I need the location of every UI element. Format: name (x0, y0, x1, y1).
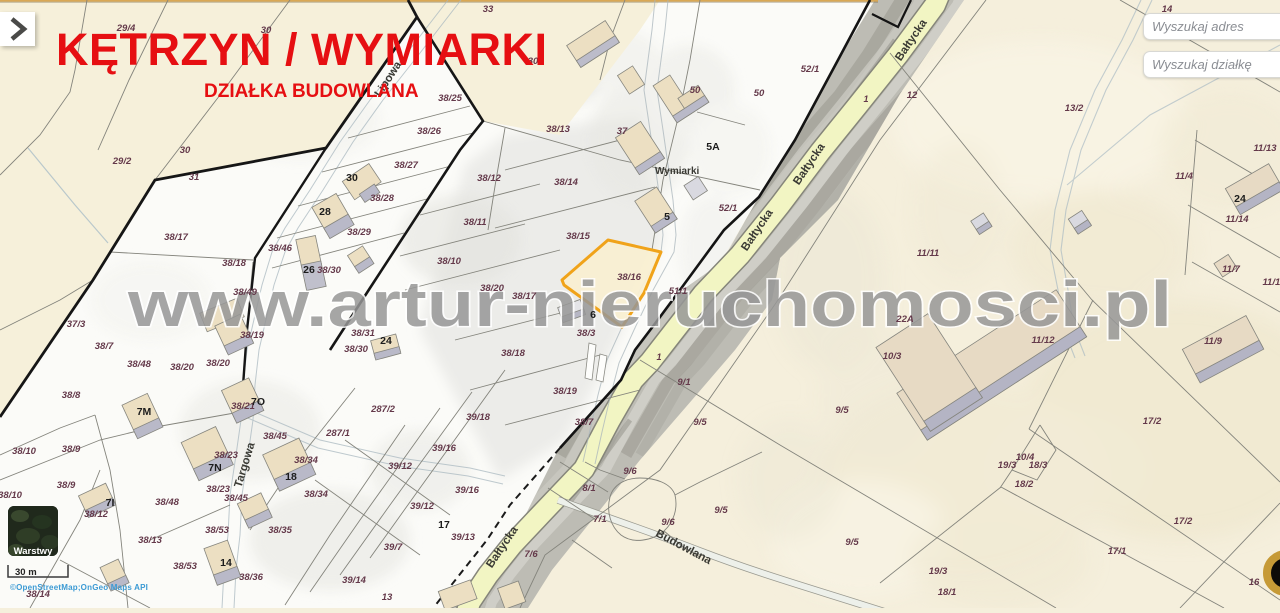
svg-text:19/3: 19/3 (929, 566, 948, 577)
svg-text:38/19: 38/19 (240, 330, 264, 341)
svg-text:26: 26 (303, 264, 315, 276)
svg-text:38/27: 38/27 (394, 160, 418, 171)
svg-text:11/4: 11/4 (1175, 171, 1194, 182)
svg-text:19/3: 19/3 (998, 460, 1017, 471)
svg-text:12: 12 (907, 90, 918, 101)
svg-text:39/12: 39/12 (410, 501, 434, 512)
svg-text:38/16: 38/16 (617, 272, 641, 283)
svg-text:39/7: 39/7 (384, 542, 403, 553)
svg-text:50: 50 (754, 88, 765, 99)
svg-text:18/3: 18/3 (1029, 460, 1048, 471)
svg-text:9/6: 9/6 (623, 466, 637, 477)
svg-text:38/7: 38/7 (95, 341, 114, 352)
svg-text:38/13: 38/13 (138, 535, 162, 546)
svg-text:39/13: 39/13 (451, 532, 475, 543)
svg-text:287/2: 287/2 (370, 404, 395, 415)
svg-text:38/20: 38/20 (170, 362, 194, 373)
svg-text:38/12: 38/12 (84, 509, 108, 520)
svg-text:5: 5 (664, 211, 670, 223)
svg-text:39/16: 39/16 (432, 443, 456, 454)
svg-text:9/6: 9/6 (661, 517, 675, 528)
svg-text:6: 6 (590, 309, 596, 321)
svg-text:38/53: 38/53 (173, 561, 197, 572)
svg-text:18/2: 18/2 (1015, 479, 1034, 490)
svg-text:38/36: 38/36 (239, 572, 263, 583)
svg-text:50: 50 (690, 85, 701, 96)
svg-text:38/9: 38/9 (57, 480, 76, 491)
svg-text:287/1: 287/1 (325, 428, 350, 439)
svg-text:38/7: 38/7 (575, 417, 594, 428)
svg-text:37: 37 (617, 126, 628, 137)
svg-text:38/12: 38/12 (477, 173, 501, 184)
svg-text:38/48: 38/48 (155, 497, 179, 508)
svg-text:18/1: 18/1 (938, 587, 957, 598)
svg-text:30 m: 30 m (15, 567, 37, 578)
svg-text:29/2: 29/2 (112, 156, 132, 167)
svg-text:39/14: 39/14 (342, 575, 366, 586)
svg-text:37/3: 37/3 (67, 319, 86, 330)
svg-text:38/19: 38/19 (553, 386, 577, 397)
svg-text:7M: 7M (137, 406, 152, 418)
svg-text:38/10: 38/10 (12, 446, 36, 457)
svg-text:52/1: 52/1 (801, 64, 820, 75)
svg-text:38/13: 38/13 (546, 124, 570, 135)
svg-text:33: 33 (483, 4, 494, 15)
svg-text:51/1: 51/1 (669, 286, 688, 297)
svg-text:38/31: 38/31 (351, 328, 375, 339)
svg-text:7/1: 7/1 (593, 514, 606, 525)
svg-text:17: 17 (438, 519, 450, 531)
svg-text:39/12: 39/12 (388, 461, 412, 472)
svg-text:9/5: 9/5 (714, 505, 728, 516)
svg-text:13/2: 13/2 (1065, 103, 1084, 114)
svg-text:39/18: 39/18 (466, 412, 490, 423)
svg-text:38/30: 38/30 (344, 344, 368, 355)
svg-text:38/34: 38/34 (304, 489, 328, 500)
svg-text:17/1: 17/1 (1108, 546, 1127, 557)
svg-text:38/23: 38/23 (214, 450, 238, 461)
svg-text:5A: 5A (706, 141, 720, 153)
svg-text:11/11: 11/11 (917, 248, 939, 259)
svg-text:www.artur-nieruchomosci.pl: www.artur-nieruchomosci.pl (127, 268, 1172, 340)
svg-text:38/29: 38/29 (347, 227, 371, 238)
svg-text:8/1: 8/1 (582, 483, 595, 494)
svg-text:31: 31 (189, 172, 200, 183)
svg-text:38/25: 38/25 (438, 93, 462, 104)
svg-text:11/7: 11/7 (1222, 264, 1241, 275)
svg-text:38/10: 38/10 (0, 490, 23, 501)
svg-text:38/49: 38/49 (233, 287, 257, 298)
svg-text:9/5: 9/5 (693, 417, 707, 428)
svg-text:39/16: 39/16 (455, 485, 479, 496)
svg-text:38/14: 38/14 (554, 177, 578, 188)
svg-text:11/13: 11/13 (1253, 143, 1277, 154)
svg-text:Warstwy: Warstwy (14, 546, 53, 556)
svg-text:22A: 22A (895, 314, 914, 325)
svg-text:38/26: 38/26 (417, 126, 441, 137)
svg-text:38/3: 38/3 (577, 328, 596, 339)
svg-text:38/30: 38/30 (317, 265, 341, 276)
svg-text:38/8: 38/8 (62, 390, 81, 401)
svg-text:52/1: 52/1 (719, 203, 738, 214)
svg-text:38/53: 38/53 (205, 525, 229, 536)
svg-text:16: 16 (1249, 577, 1260, 588)
svg-text:9/1: 9/1 (677, 377, 690, 388)
svg-text:38/34: 38/34 (294, 455, 318, 466)
svg-text:1: 1 (656, 352, 661, 362)
svg-text:1: 1 (863, 94, 868, 104)
svg-text:24: 24 (380, 335, 392, 347)
svg-text:7/6: 7/6 (524, 549, 538, 560)
svg-text:14: 14 (220, 557, 232, 569)
svg-text:38/18: 38/18 (501, 348, 525, 359)
svg-text:38/15: 38/15 (566, 231, 590, 242)
svg-text:38/20: 38/20 (206, 358, 230, 369)
svg-text:38/9: 38/9 (62, 444, 81, 455)
svg-text:Wymiarki: Wymiarki (655, 166, 700, 177)
svg-text:30: 30 (346, 172, 358, 184)
svg-text:38/23: 38/23 (206, 484, 230, 495)
svg-text:38/17: 38/17 (164, 232, 188, 243)
svg-text:11/9: 11/9 (1204, 336, 1223, 347)
svg-text:17/2: 17/2 (1174, 516, 1193, 527)
svg-text:38/20: 38/20 (480, 283, 504, 294)
svg-text:9/5: 9/5 (835, 405, 849, 416)
svg-text:13: 13 (382, 592, 393, 603)
svg-text:7N: 7N (208, 462, 221, 474)
svg-text:7O: 7O (251, 396, 265, 408)
svg-text:9/5: 9/5 (845, 537, 859, 548)
svg-text:38/46: 38/46 (268, 243, 292, 254)
svg-text:38/35: 38/35 (268, 525, 292, 536)
svg-text:11/12: 11/12 (1031, 335, 1055, 346)
svg-text:28: 28 (319, 206, 331, 218)
svg-text:38/10: 38/10 (437, 256, 461, 267)
svg-text:30: 30 (180, 145, 191, 156)
svg-text:38/28: 38/28 (370, 193, 394, 204)
svg-text:38/48: 38/48 (127, 359, 151, 370)
svg-text:11/16: 11/16 (1262, 277, 1280, 288)
svg-text:10/3: 10/3 (883, 351, 902, 362)
svg-text:38/11: 38/11 (463, 217, 486, 228)
svg-text:38/45: 38/45 (263, 431, 287, 442)
svg-text:17/2: 17/2 (1143, 416, 1162, 427)
svg-text:24: 24 (1234, 193, 1246, 205)
svg-text:7I: 7I (106, 497, 115, 509)
svg-text:38/17: 38/17 (512, 291, 536, 302)
svg-text:11/14: 11/14 (1225, 214, 1249, 225)
svg-text:38/18: 38/18 (222, 258, 246, 269)
svg-text:18: 18 (285, 471, 297, 483)
